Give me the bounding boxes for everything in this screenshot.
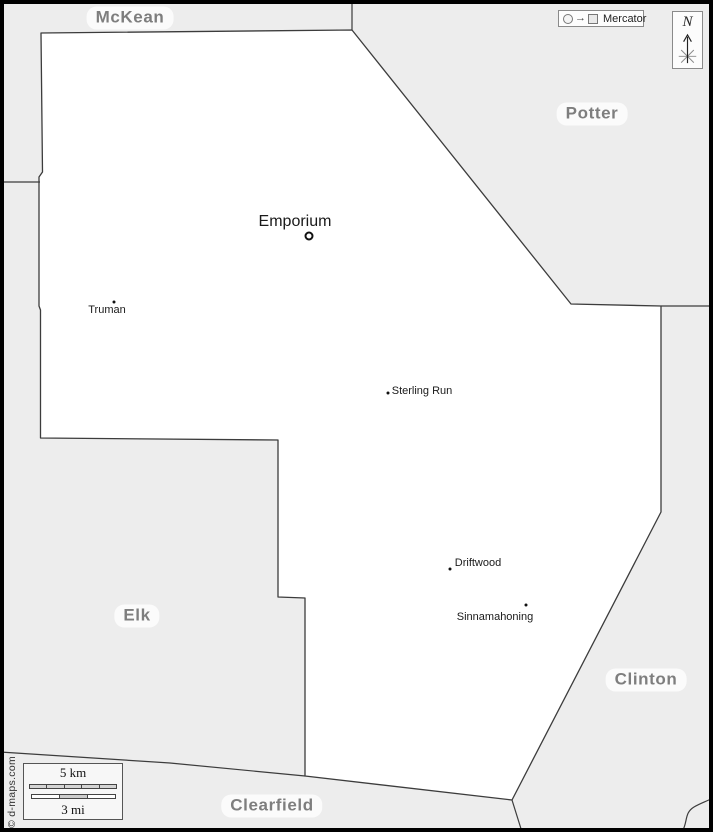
scale-mi-label: 3 mi (61, 803, 84, 817)
town-marker-truman (113, 301, 116, 304)
town-marker-driftwood (449, 568, 452, 571)
compass-north-label: N (682, 13, 692, 31)
county-label-clearfield: Clearfield (221, 795, 322, 818)
town-label-sterling-run: Sterling Run (392, 385, 453, 397)
projection-name: Mercator (603, 13, 646, 25)
town-label-driftwood: Driftwood (455, 557, 501, 569)
projection-legend: → Mercator (558, 10, 644, 27)
scale-bar: 5 km 3 mi (23, 763, 123, 820)
flat-map-square-icon (588, 14, 598, 24)
scale-km-bar (29, 784, 117, 789)
compass-needle-icon (672, 31, 703, 68)
arrow-right-icon: → (575, 13, 586, 24)
county-label-potter: Potter (557, 103, 628, 126)
town-marker-sterling-run (387, 392, 390, 395)
town-label-truman: Truman (88, 304, 126, 316)
town-marker-sinnamahoning (525, 604, 528, 607)
county-label-elk: Elk (114, 605, 159, 628)
town-marker-emporium (305, 232, 314, 241)
town-label-emporium: Emporium (259, 213, 332, 231)
copyright-credit: © d-maps.com (6, 756, 18, 828)
globe-circle-icon (563, 14, 573, 24)
county-label-clinton: Clinton (606, 669, 687, 692)
scale-mi-bar (31, 794, 116, 799)
county-label-mckean: McKean (87, 7, 174, 30)
town-label-sinnamahoning: Sinnamahoning (457, 611, 533, 623)
map-stage: McKean Potter Elk Clinton Clearfield Emp… (0, 0, 713, 832)
compass-rose: N (672, 11, 703, 69)
scale-km-label: 5 km (60, 766, 86, 780)
